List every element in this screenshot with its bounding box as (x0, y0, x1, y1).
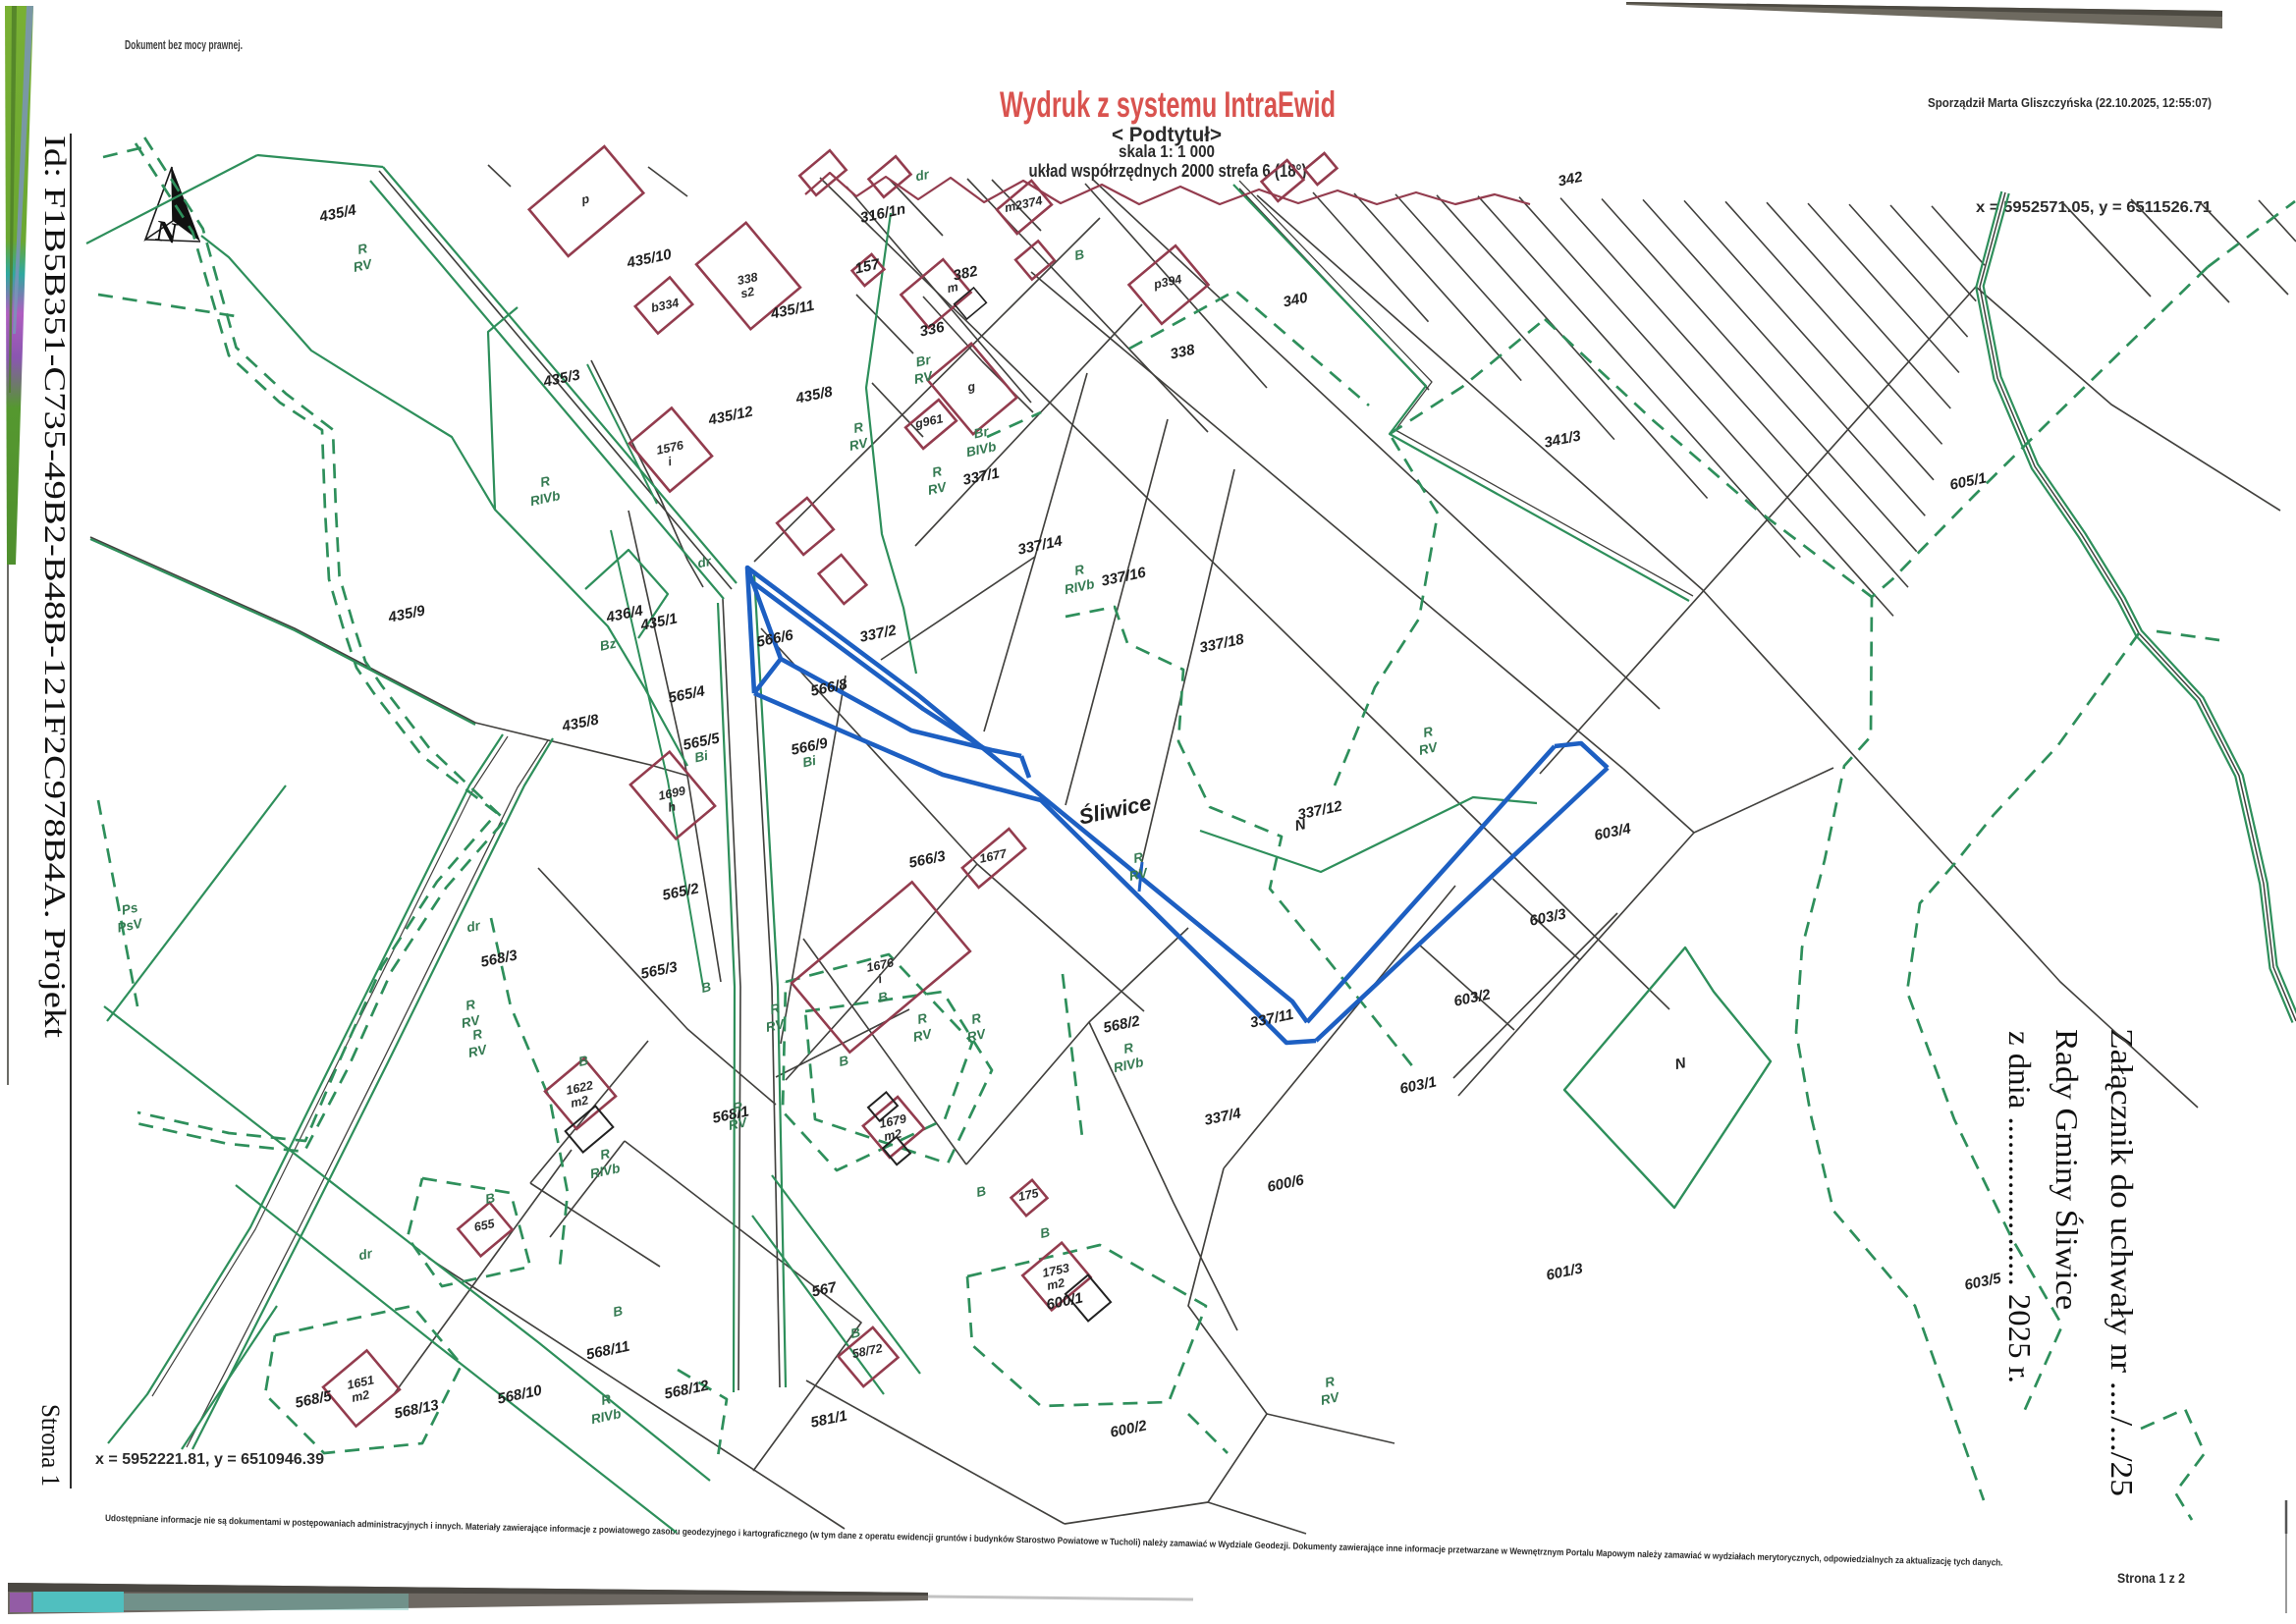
svg-text:s2: s2 (739, 285, 756, 301)
svg-text:Id: F1B5B351-C735-49B2-B48B-12: Id: F1B5B351-C735-49B2-B48B-121F2C978B4A… (38, 135, 73, 1038)
svg-text:Sporządził Marta Gliszczyńska: Sporządził Marta Gliszczyńska (22.10.202… (1928, 96, 2212, 110)
svg-text:z dnia ..................... 2: z dnia ..................... 2025 r. (2002, 1031, 2037, 1383)
svg-text:Strona 1 z 2: Strona 1 z 2 (2117, 1571, 2185, 1586)
svg-text:Rady Gminy Śliwice: Rady Gminy Śliwice (2050, 1029, 2084, 1310)
svg-text:skala 1: 1 000: skala 1: 1 000 (1119, 141, 1215, 161)
svg-text:Załącznik do uchwały nr ....: Załącznik do uchwały nr ..../.../25 (2105, 1028, 2139, 1496)
svg-text:Dokument bez mocy prawnej.: Dokument bez mocy prawnej. (125, 38, 243, 52)
svg-text:Strona 1: Strona 1 (36, 1404, 65, 1487)
svg-text:Wydruk z systemu IntraEwid: Wydruk z systemu IntraEwid (1000, 84, 1336, 125)
svg-text:x = 5952221.81, y = 6510946.39: x = 5952221.81, y = 6510946.39 (95, 1451, 324, 1468)
svg-text:x = 5952571.05, y = 6511526.71: x = 5952571.05, y = 6511526.71 (1976, 199, 2212, 216)
